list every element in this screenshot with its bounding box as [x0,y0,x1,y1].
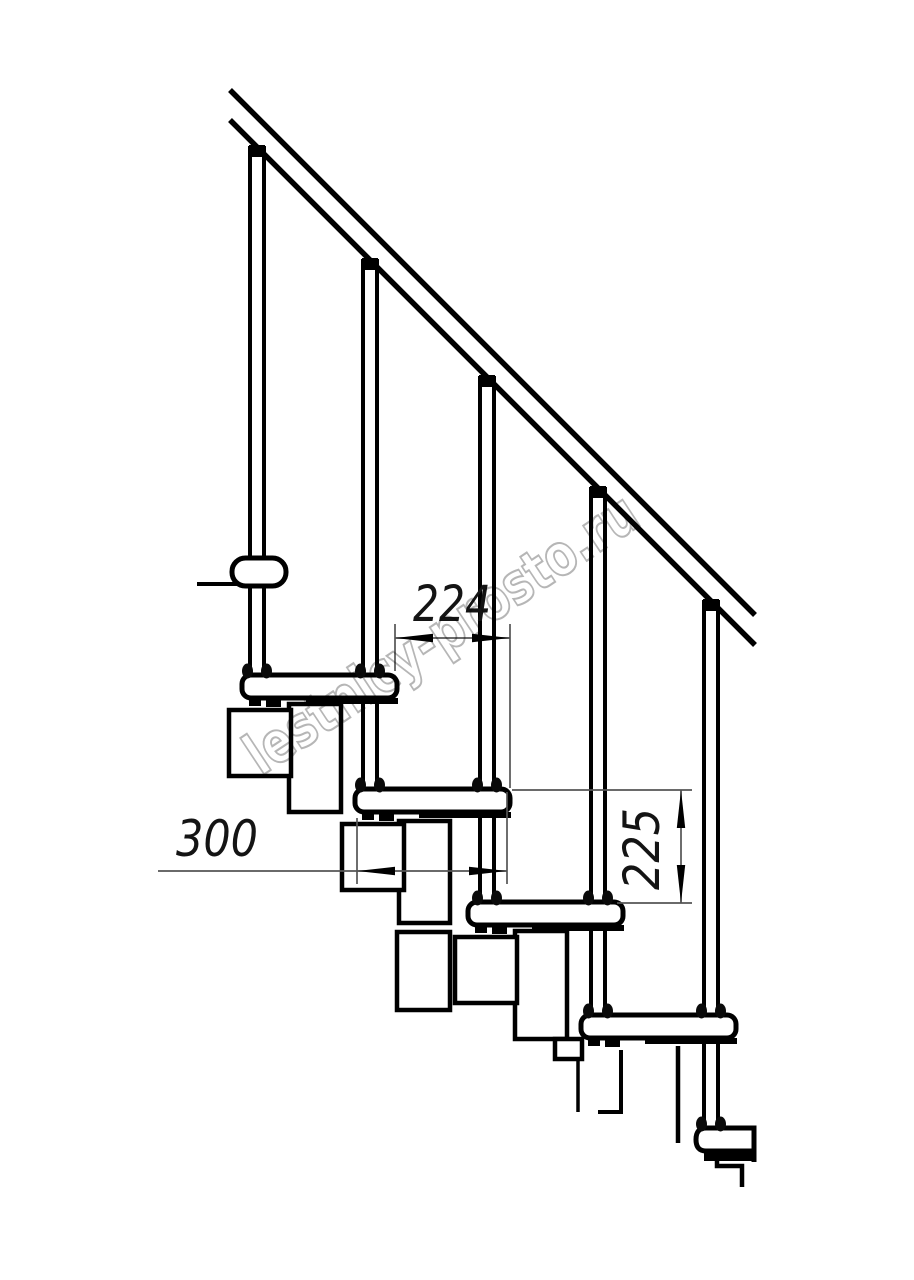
rail-bracket [197,558,286,586]
support-module-2 [342,821,450,1010]
staircase-drawing: 224 300 225 lestnicy-prosto.ru [0,0,914,1280]
watermark: lestnicy-prosto.ru [232,480,650,788]
tread-4 [581,1015,736,1038]
tread-2 [355,789,510,812]
baluster-5 [704,602,718,1129]
tread-3 [468,902,623,925]
dim-value-step-rise: 225 [613,808,671,890]
dim-value-tread-depth: 300 [176,810,258,868]
support-module-4 [598,1046,678,1143]
support-module-3 [455,931,582,1112]
baluster-1 [250,148,264,676]
technical-drawing-page: 224 300 225 lestnicy-prosto.ru [0,0,914,1280]
bottom-cut-line [717,1161,742,1187]
tread-5-cut [696,1128,754,1151]
